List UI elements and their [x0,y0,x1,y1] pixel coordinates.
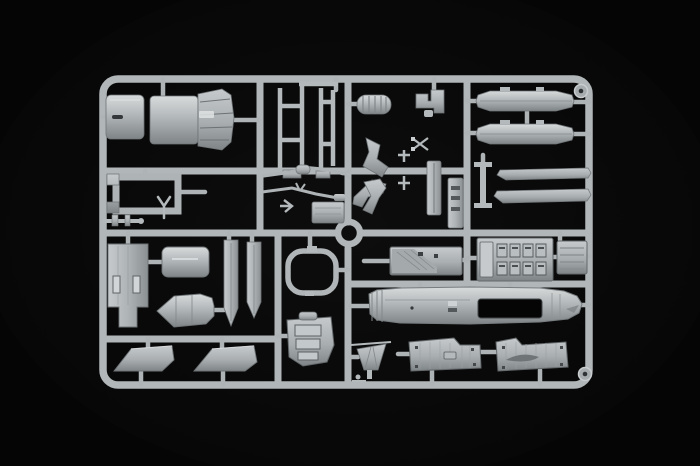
engine-front-marking [112,115,123,119]
part-keel [448,178,463,228]
fuselage-hatch-dark [448,308,457,312]
gear-strut-1-hub [296,165,310,174]
gear-strut-2-foot [334,194,345,201]
avionics-rack-side [480,242,493,277]
corner-marker-top-right-hole [579,89,584,94]
corner-marker-bottom-right-hole [583,372,588,377]
belly-panel-1-hatch [444,352,456,359]
antenna-ball [356,375,361,380]
part-fuselage-half [369,287,582,324]
keel-slots [451,186,460,211]
seat-cushions [295,325,321,360]
part-engine-front-cylinder [106,95,144,139]
valve-foot [424,110,433,117]
part-tank-front [162,247,209,277]
small-rod-tip [138,218,144,224]
part-small-plate [312,202,344,223]
nozzle-highlight [199,111,214,118]
seat-headrest [299,312,317,320]
fuselage-cockpit-cutout [478,299,542,318]
part-pylon-strake-1 [497,168,591,180]
product-photo [0,0,700,466]
fuselage-hatch-light [448,301,457,306]
chute-stem [367,370,372,379]
fuselage-rivet [410,306,413,309]
part-engine-nozzle-body [150,96,198,144]
part-engine-nozzle-petals [198,89,234,150]
sprue-photo [0,0,700,466]
part-pylon-strake-2 [494,189,591,203]
